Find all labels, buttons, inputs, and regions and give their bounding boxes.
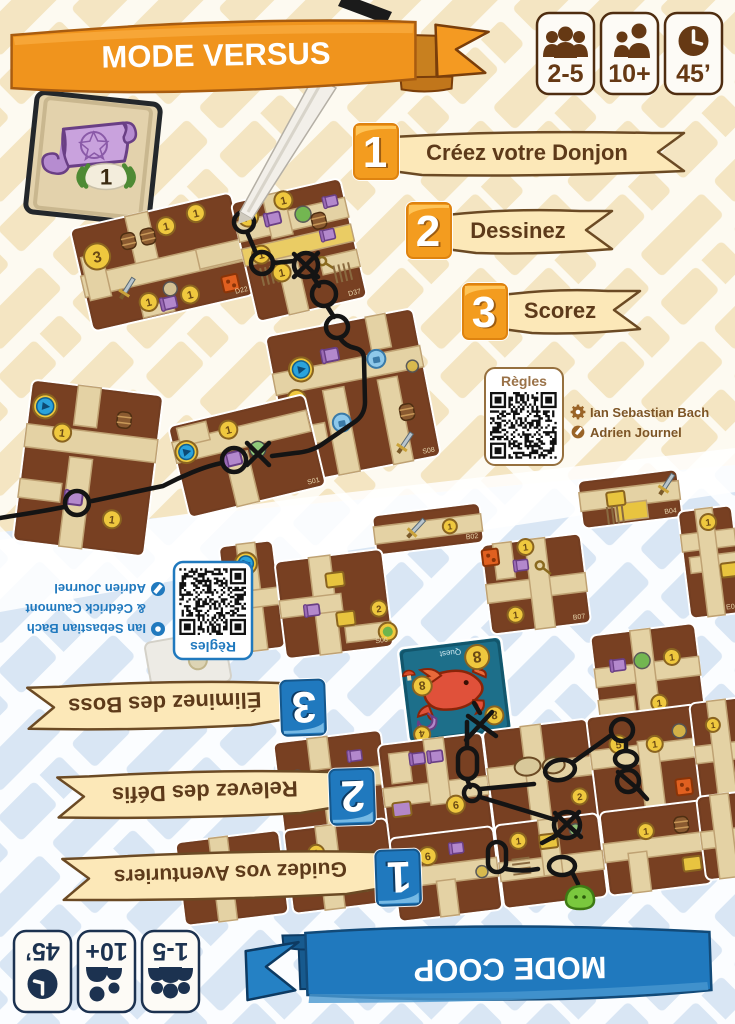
svg-text:10+: 10+: [85, 937, 127, 965]
svg-text:Règles: Règles: [190, 639, 236, 655]
svg-text:Adrien Journel: Adrien Journel: [54, 581, 146, 596]
svg-text:2: 2: [340, 771, 366, 821]
svg-text:Règles: Règles: [501, 373, 547, 389]
svg-text:10+: 10+: [608, 60, 650, 88]
svg-text:2-5: 2-5: [547, 60, 583, 88]
svg-text:Dessinez: Dessinez: [470, 218, 565, 243]
svg-text:1-5: 1-5: [152, 937, 188, 965]
svg-text:MODE VERSUS: MODE VERSUS: [101, 36, 331, 75]
svg-text:& Cédrick Caumont: & Cédrick Caumont: [25, 601, 146, 616]
svg-text:Ian Sebastian Bach: Ian Sebastian Bach: [27, 621, 146, 636]
svg-text:3: 3: [472, 288, 496, 337]
svg-text:Adrien Journel: Adrien Journel: [590, 425, 682, 440]
svg-text:2: 2: [416, 207, 440, 256]
svg-text:Ian Sebastian Bach: Ian Sebastian Bach: [590, 405, 709, 420]
svg-text:1: 1: [100, 164, 112, 189]
svg-text:E06: E06: [726, 603, 735, 611]
svg-text:Créez votre Donjon: Créez votre Donjon: [426, 140, 628, 165]
svg-text:1: 1: [386, 852, 412, 902]
svg-text:45’: 45’: [676, 60, 711, 88]
svg-text:1: 1: [363, 128, 387, 177]
svg-text:Scorez: Scorez: [524, 298, 596, 323]
svg-text:3: 3: [291, 682, 317, 732]
svg-text:MODE COOP: MODE COOP: [413, 950, 606, 988]
svg-text:45’: 45’: [25, 937, 60, 965]
